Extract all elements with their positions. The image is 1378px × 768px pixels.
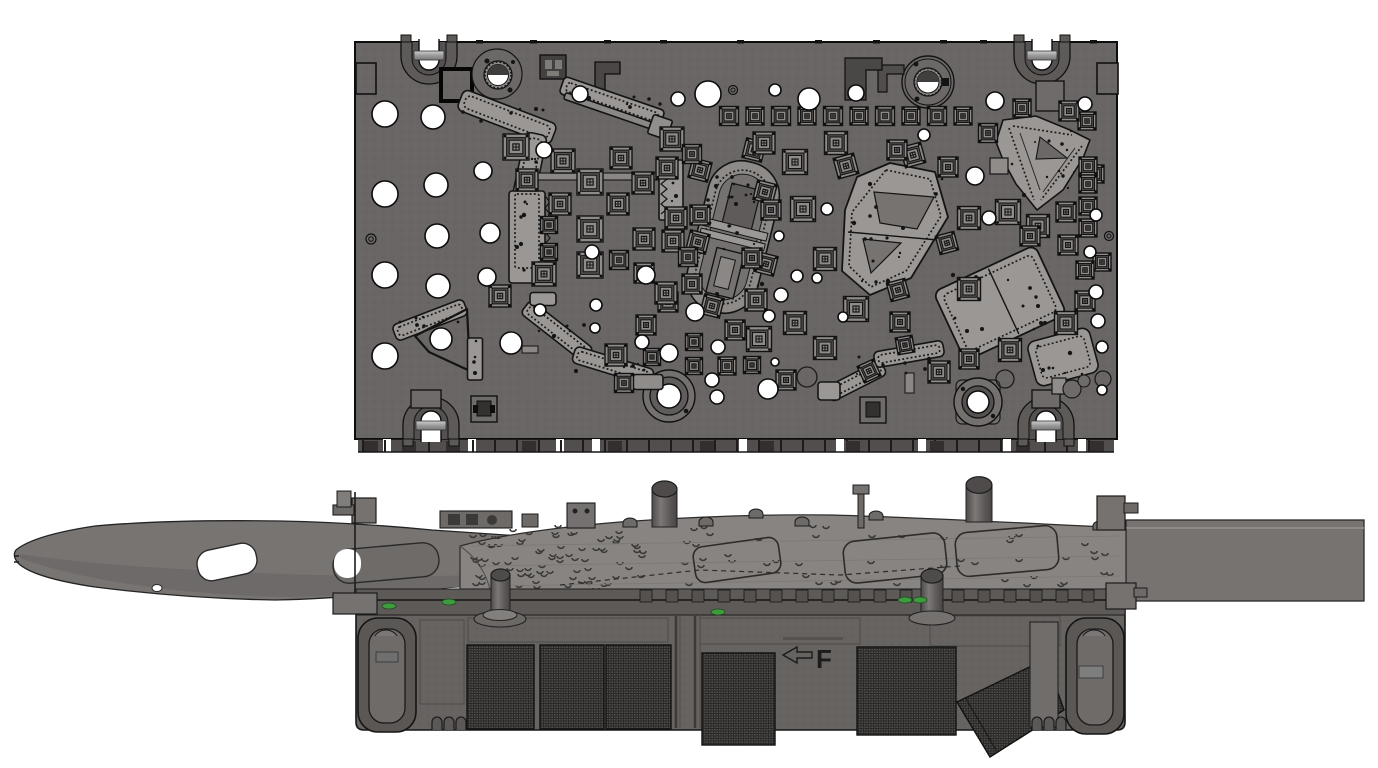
svg-text:F: F bbox=[816, 644, 832, 674]
